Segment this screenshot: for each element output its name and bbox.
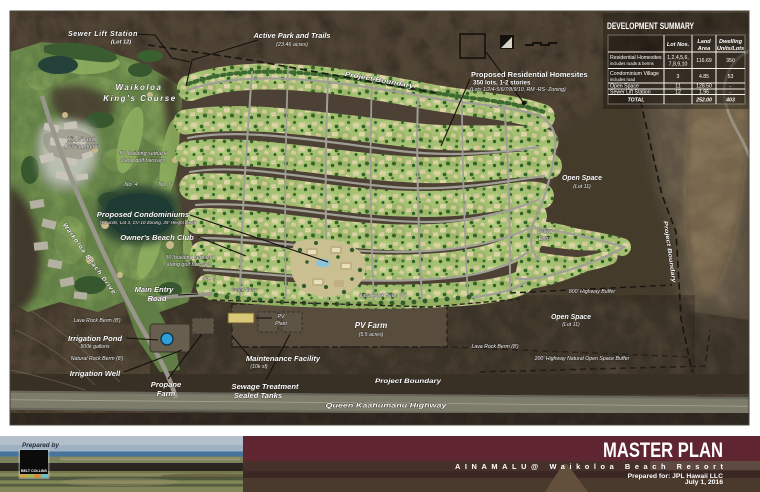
svg-text:Prepared by: Prepared by — [22, 442, 59, 449]
svg-text:-: - — [730, 90, 732, 96]
svg-text:Plant: Plant — [275, 321, 287, 327]
svg-text:Sealed Tanks: Sealed Tanks — [234, 391, 282, 400]
svg-text:includes road: includes road — [610, 77, 636, 82]
svg-text:500k gallons: 500k gallons — [80, 344, 110, 350]
svg-text:252.00: 252.00 — [695, 98, 712, 104]
svg-text:Proposed Residential Homesites: Proposed Residential Homesites — [471, 70, 588, 79]
svg-text:403: 403 — [725, 98, 735, 104]
svg-text:Irrigation Pond: Irrigation Pond — [68, 334, 122, 343]
svg-text:Maintenance Facility: Maintenance Facility — [246, 354, 321, 363]
svg-text:No. 5: No. 5 — [202, 276, 216, 282]
svg-text:50' building setback: 50' building setback — [119, 151, 166, 157]
svg-text:(Lot 11): (Lot 11) — [562, 322, 580, 328]
svg-text:Sewage Treatment: Sewage Treatment — [232, 382, 299, 391]
svg-text:Propane: Propane — [151, 380, 182, 389]
svg-text:(10k sf): (10k sf) — [250, 364, 268, 370]
svg-text:along golf fairways: along golf fairways — [121, 158, 166, 164]
svg-text:TOTAL: TOTAL — [628, 98, 645, 104]
svg-text:BELT COLLINS: BELT COLLINS — [21, 469, 47, 473]
svg-text:No. 4: No. 4 — [124, 182, 137, 188]
svg-text:Lava Rock Berm (8'): Lava Rock Berm (8') — [359, 293, 406, 299]
svg-text:12: 12 — [675, 90, 681, 96]
svg-text:800' Highway Buffer: 800' Highway Buffer — [569, 289, 616, 295]
svg-text:350: 350 — [726, 58, 735, 64]
svg-text:Natural Rock Berm (8'): Natural Rock Berm (8') — [71, 356, 124, 362]
svg-text:(53 units, Lot 3, CV-10 Zoning: (53 units, Lot 3, CV-10 Zoning, 35' Heig… — [100, 220, 197, 225]
svg-text:(Lot 11): (Lot 11) — [573, 184, 591, 190]
svg-text:50' building setback: 50' building setback — [165, 255, 212, 261]
svg-text:Lot Nos.: Lot Nos. — [667, 42, 690, 48]
svg-text:(Lots 1/2/4-5/6/7/8/9/10, RM -: (Lots 1/2/4-5/6/7/8/9/10, RM -RS- Zoning… — [470, 87, 566, 93]
svg-text:4.85: 4.85 — [699, 74, 709, 80]
svg-text:King's Course: King's Course — [103, 94, 176, 103]
svg-text:53: 53 — [728, 74, 734, 80]
svg-text:350 lots, 1-2 stories: 350 lots, 1-2 stories — [473, 80, 531, 87]
svg-text:Project Boundary: Project Boundary — [375, 379, 442, 385]
svg-text:7,8,9,10: 7,8,9,10 — [669, 62, 688, 68]
svg-text:PV Farm: PV Farm — [355, 321, 387, 330]
svg-text:116.69: 116.69 — [696, 58, 712, 64]
svg-text:Main Entry: Main Entry — [135, 285, 175, 294]
svg-text:Active Park and Trails: Active Park and Trails — [252, 31, 330, 40]
svg-text:Dwelling: Dwelling — [719, 39, 743, 45]
svg-text:Irrigation Well: Irrigation Well — [70, 369, 121, 378]
svg-text:1.96: 1.96 — [699, 90, 709, 96]
svg-text:includes roads & berms: includes roads & berms — [610, 61, 654, 66]
svg-text:Farm: Farm — [157, 389, 176, 398]
svg-text:July 1, 2016: July 1, 2016 — [685, 479, 723, 486]
svg-text:Gated Entry: Gated Entry — [231, 287, 257, 293]
svg-text:Lava Rock Berm (8'): Lava Rock Berm (8') — [73, 318, 120, 324]
svg-text:200' Highway Natural Open Spac: 200' Highway Natural Open Space Buffer — [534, 356, 630, 362]
svg-text:Proposed Condominiums: Proposed Condominiums — [97, 210, 189, 219]
svg-text:Queen Kaahumanu Highway: Queen Kaahumanu Highway — [326, 403, 447, 410]
svg-text:Waikoloa: Waikoloa — [116, 83, 163, 92]
svg-text:Road: Road — [148, 294, 167, 303]
svg-text:Open Space: Open Space — [562, 173, 603, 182]
svg-text:3: 3 — [677, 74, 680, 80]
svg-text:Area: Area — [697, 46, 710, 52]
svg-text:PV: PV — [278, 314, 285, 320]
svg-text:Kings'Land: Kings'Land — [67, 137, 95, 143]
svg-text:along golf fairways: along golf fairways — [167, 262, 212, 268]
svg-text:MASTER PLAN: MASTER PLAN — [603, 438, 723, 462]
svg-text:Development: Development — [65, 144, 98, 150]
svg-text:Entry: Entry — [539, 236, 552, 242]
svg-text:1,2,4,5,6,: 1,2,4,5,6, — [667, 55, 689, 61]
svg-text:Sewer Lift Station: Sewer Lift Station — [68, 31, 138, 38]
svg-text:No. 6: No. 6 — [158, 182, 172, 188]
svg-text:Owner's Beach Club: Owner's Beach Club — [120, 233, 194, 242]
svg-text:(23.46 acres): (23.46 acres) — [276, 42, 308, 48]
svg-text:(5.5 acres): (5.5 acres) — [359, 332, 384, 338]
svg-text:Land: Land — [697, 39, 711, 45]
svg-text:Sewer Lift Station: Sewer Lift Station — [610, 90, 651, 96]
svg-text:Units/Lots: Units/Lots — [717, 46, 744, 52]
svg-text:Open Space: Open Space — [551, 312, 592, 321]
svg-text:(Lot 12): (Lot 12) — [111, 40, 131, 46]
svg-text:Lava Rock Berm (8'): Lava Rock Berm (8') — [471, 344, 518, 350]
svg-text:DEVELOPMENT SUMMARY: DEVELOPMENT SUMMARY — [607, 21, 694, 31]
svg-text:Gated: Gated — [538, 229, 554, 235]
